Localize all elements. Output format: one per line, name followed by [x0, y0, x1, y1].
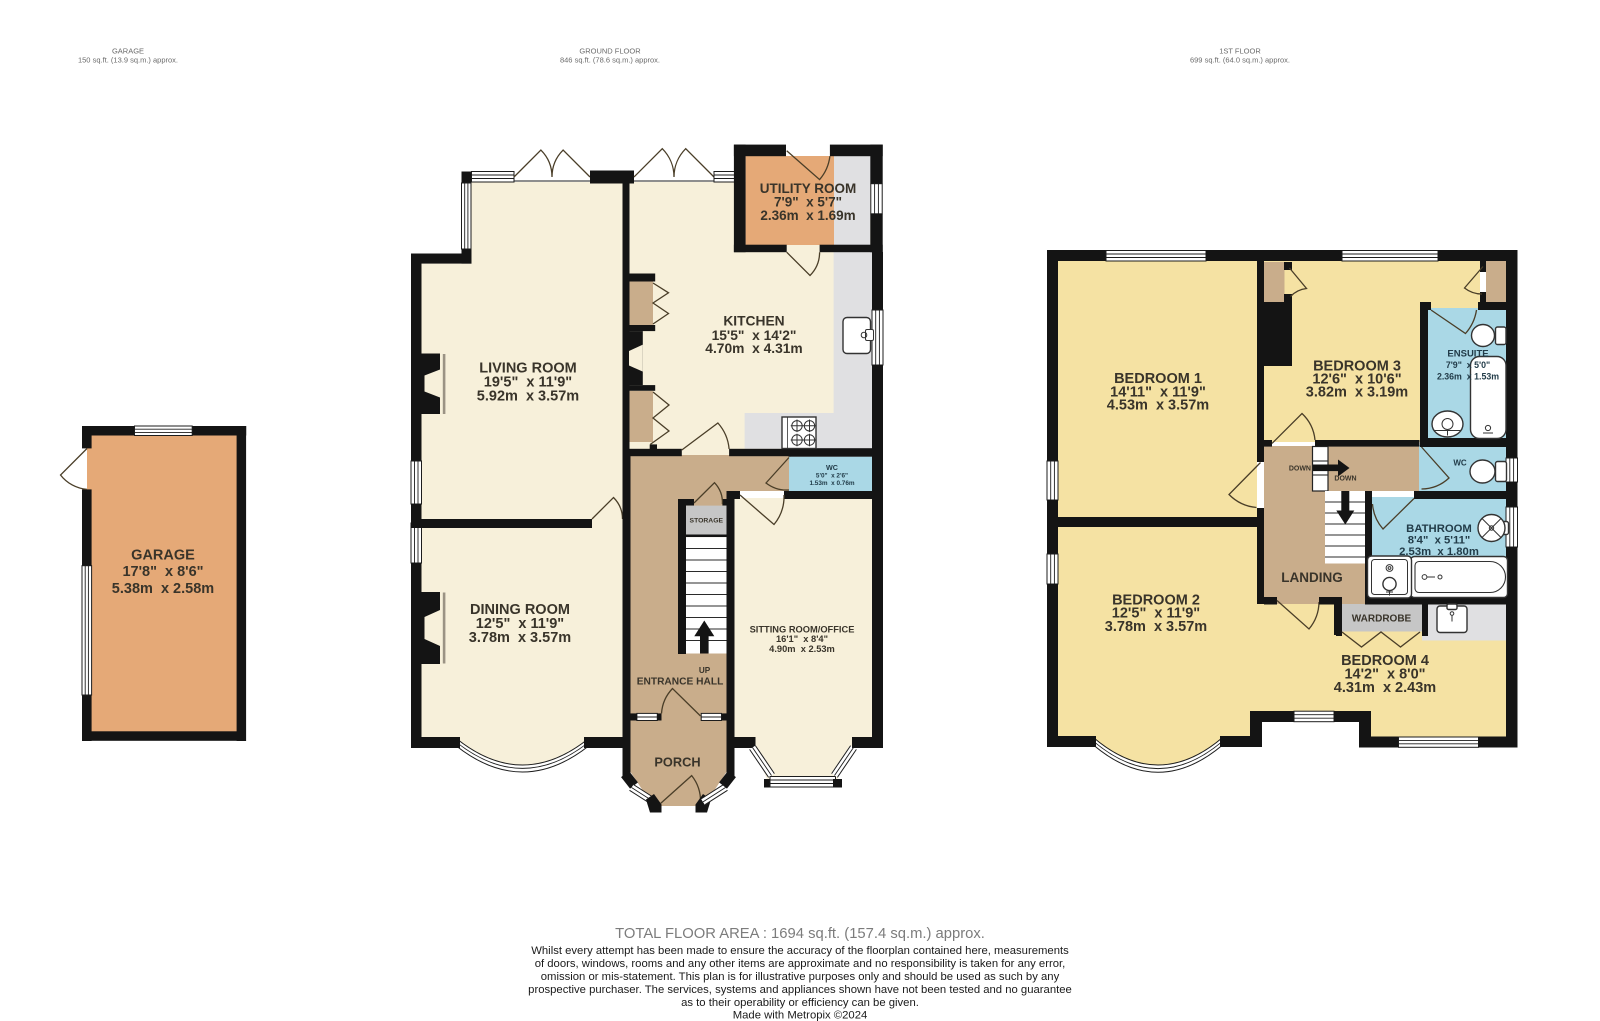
svg-text:UP: UP	[699, 666, 711, 675]
svg-text:prospective purchaser. The ser: prospective purchaser. The services, sys…	[528, 984, 1072, 996]
svg-text:Whilst every attempt has been: Whilst every attempt has been made to en…	[531, 945, 1069, 957]
svg-text:3.82m x 3.19m: 3.82m x 3.19m	[1306, 385, 1408, 401]
svg-text:1ST FLOOR: 1ST FLOOR	[1219, 47, 1261, 56]
svg-text:DOWN: DOWN	[1289, 466, 1311, 473]
svg-text:2.36m x 1.69m: 2.36m x 1.69m	[760, 208, 855, 223]
svg-text:4.53m x 3.57m: 4.53m x 3.57m	[1107, 398, 1209, 414]
svg-text:GARAGE: GARAGE	[131, 548, 195, 564]
svg-text:5.38m x 2.58m: 5.38m x 2.58m	[112, 581, 214, 597]
svg-text:BATHROOM: BATHROOM	[1406, 523, 1472, 535]
svg-text:2.36m x 1.53m: 2.36m x 1.53m	[1437, 372, 1499, 382]
svg-text:TOTAL FLOOR AREA : 1694 sq.ft.: TOTAL FLOOR AREA : 1694 sq.ft. (157.4 sq…	[615, 926, 985, 942]
svg-text:699 sq.ft. (64.0 sq.m.) approx: 699 sq.ft. (64.0 sq.m.) approx.	[1190, 56, 1290, 65]
svg-text:4.31m x 2.43m: 4.31m x 2.43m	[1334, 680, 1436, 696]
svg-text:2.53m x 1.80m: 2.53m x 1.80m	[1399, 546, 1479, 558]
svg-text:17'8" x 8'6": 17'8" x 8'6"	[122, 564, 203, 580]
svg-text:DOWN: DOWN	[1334, 476, 1356, 483]
svg-text:Made with Metropix ©2024: Made with Metropix ©2024	[733, 1010, 868, 1021]
svg-text:WC: WC	[826, 463, 838, 472]
svg-text:7'9" x 5'0": 7'9" x 5'0"	[1446, 360, 1490, 370]
svg-text:16'1" x 8'4": 16'1" x 8'4"	[776, 634, 828, 644]
svg-text:GARAGE: GARAGE	[112, 47, 144, 56]
svg-text:ENSUITE: ENSUITE	[1447, 349, 1488, 360]
svg-text:omission or mis-statement. Thi: omission or mis-statement. This plan is …	[541, 971, 1060, 983]
svg-text:SITTING ROOM/OFFICE: SITTING ROOM/OFFICE	[750, 625, 855, 635]
svg-text:5'0" x 2'6": 5'0" x 2'6"	[816, 473, 848, 480]
svg-text:8'4" x 5'11": 8'4" x 5'11"	[1408, 535, 1471, 547]
svg-text:WARDROBE: WARDROBE	[1352, 614, 1412, 625]
svg-text:4.70m x 4.31m: 4.70m x 4.31m	[705, 341, 802, 356]
svg-text:STORAGE: STORAGE	[690, 518, 724, 525]
svg-text:150 sq.ft. (13.9 sq.m.) approx: 150 sq.ft. (13.9 sq.m.) approx.	[78, 56, 178, 65]
svg-text:3.78m x 3.57m: 3.78m x 3.57m	[469, 630, 571, 646]
svg-text:of doors, windows, rooms and a: of doors, windows, rooms and any other i…	[535, 958, 1066, 970]
svg-text:5.92m x 3.57m: 5.92m x 3.57m	[477, 389, 579, 405]
svg-text:as to their operability or eff: as to their operability or efficiency ca…	[681, 997, 919, 1009]
svg-text:4.90m x 2.53m: 4.90m x 2.53m	[769, 644, 835, 654]
svg-text:ENTRANCE HALL: ENTRANCE HALL	[637, 677, 724, 688]
svg-text:WC: WC	[1453, 459, 1467, 468]
svg-text:KITCHEN: KITCHEN	[723, 314, 784, 329]
svg-text:GROUND FLOOR: GROUND FLOOR	[579, 47, 641, 56]
svg-text:1.53m x 0.76m: 1.53m x 0.76m	[809, 480, 854, 487]
svg-text:PORCH: PORCH	[654, 755, 700, 770]
svg-text:LANDING: LANDING	[1281, 570, 1343, 585]
svg-text:3.78m x 3.57m: 3.78m x 3.57m	[1105, 619, 1207, 635]
svg-text:846 sq.ft. (78.6 sq.m.) approx: 846 sq.ft. (78.6 sq.m.) approx.	[560, 56, 660, 65]
